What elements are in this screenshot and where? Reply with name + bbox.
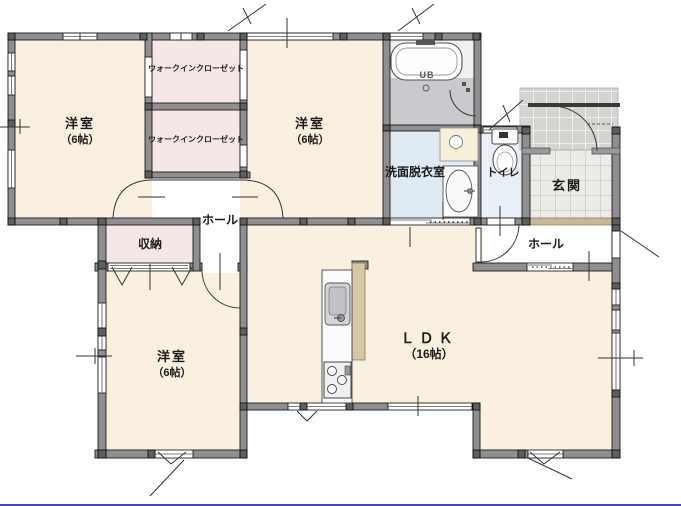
wic1-label: ウォークインクローゼット bbox=[141, 64, 251, 74]
wic2-label: ウォークインクローゼット bbox=[141, 135, 251, 145]
hall-center-label: ホール bbox=[188, 213, 252, 229]
ldk-label: ＬＤＫ （16帖） bbox=[369, 329, 489, 363]
bedroom2-label: 洋室 （6帖） bbox=[250, 116, 370, 147]
toilet-label: トイレ bbox=[473, 166, 533, 180]
floor-plan-drawing: .w{fill:#8f8f8f;stroke:#1c1c1c;stroke-wi… bbox=[0, 0, 681, 506]
washing-machine-circle bbox=[450, 136, 463, 149]
entrance-label: 玄関 bbox=[535, 178, 599, 195]
floor-plan: .w{fill:#8f8f8f;stroke:#1c1c1c;stroke-wi… bbox=[0, 0, 681, 506]
entrance-door-leaf bbox=[528, 103, 620, 107]
kitchen-panel bbox=[352, 263, 365, 360]
storage-label: 収納 bbox=[118, 237, 182, 253]
toilet-door bbox=[487, 218, 515, 225]
washroom-label: 洗面脱衣室 bbox=[358, 165, 472, 181]
bedroom3-label: 洋室 （6帖） bbox=[112, 349, 232, 380]
storage-bifold-door bbox=[108, 263, 190, 271]
hall-door-leaf bbox=[476, 228, 481, 262]
bedroom1-label: 洋室 （6帖） bbox=[20, 116, 140, 147]
side-entry-door bbox=[612, 228, 620, 258]
entrance-step bbox=[530, 218, 612, 225]
bath-label: UB bbox=[412, 70, 442, 82]
hall-entrance-label: ホール bbox=[514, 237, 578, 253]
